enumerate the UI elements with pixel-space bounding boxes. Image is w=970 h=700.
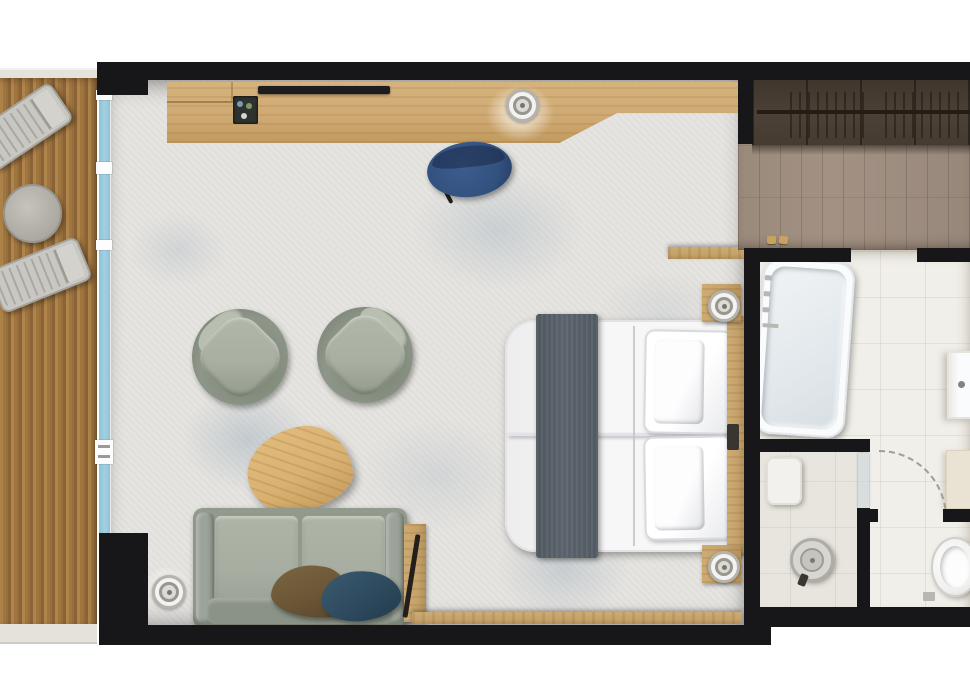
tub-rail [762,323,778,328]
sliding-glass-wall [99,92,110,533]
storage-cabinet [946,450,970,509]
rain-shower-head-icon [790,538,834,582]
tub-handle [762,307,769,312]
shower-head-core [810,558,815,563]
sink-drain [958,381,965,388]
glass-door-handle [95,440,113,464]
handle-tick [98,445,110,448]
bathtub-basin [761,266,848,431]
toilet-bowl [940,546,970,588]
toilet-brush [923,592,935,601]
shower-bench [766,457,802,505]
room-bathroom [0,0,970,700]
floor-plan [0,0,970,700]
glass-mullion [96,240,112,250]
handle-tick [98,455,110,458]
tub-handle [764,291,771,296]
tub-faucet [765,275,772,280]
glass-mullion [96,162,112,174]
glass-mullion [96,90,112,100]
bathtub [752,257,856,439]
shower-glass-door [858,453,869,508]
